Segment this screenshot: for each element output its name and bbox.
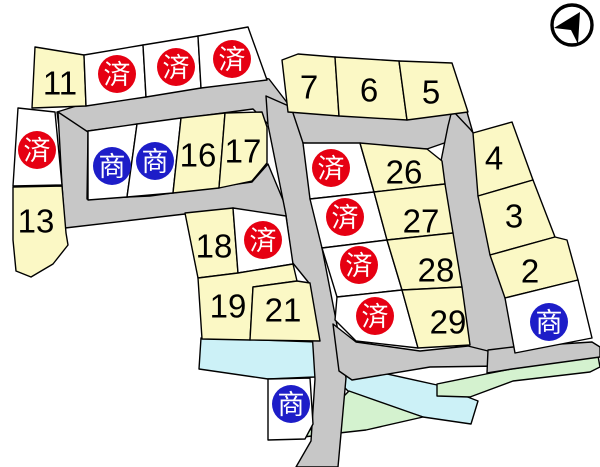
lot-sold-col-3-badge-label: 済 [346,251,373,281]
lot-21-label: 21 [265,292,302,329]
lot-3-label: 3 [505,198,523,235]
lot-13-label: 13 [18,203,55,240]
lot-4-label: 4 [485,140,503,177]
lot-sold-west-badge-label: 済 [24,136,51,166]
lot-commercial-4-badge-label: 商 [278,390,305,420]
lot-sold-mid-badge-label: 済 [250,226,277,256]
lot-7-label: 7 [300,69,318,106]
lot-2-label: 2 [521,253,539,290]
site-map-page: 11済済済765済13商商161718済1921済済済済26272829432商… [0,0,600,467]
lot-17-label: 17 [225,133,262,170]
lot-16-label: 16 [180,137,217,174]
lot-sold-col-4-badge-label: 済 [362,302,389,332]
lot-19-label: 19 [210,288,247,325]
lot-commercial-2-badge-label: 商 [142,147,169,177]
lot-sold-top-1-badge-label: 済 [104,60,131,90]
lot-sold-top-2-badge-label: 済 [163,53,190,83]
lot-commercial-1-badge-label: 商 [99,152,126,182]
lot-6-label: 6 [360,72,378,109]
lot-18-label: 18 [196,228,233,265]
lot-26-label: 26 [386,154,423,191]
lot-commercial-3-badge-label: 商 [536,308,563,338]
lot-11-label: 11 [43,65,77,102]
lot-29-label: 29 [430,304,467,341]
lot-27-label: 27 [403,203,440,240]
north-arrow-icon [552,5,592,45]
lot-5-label: 5 [422,74,440,111]
lot-28-label: 28 [418,252,455,289]
lot-sold-top-3-badge-label: 済 [219,45,246,75]
site-map: 11済済済765済13商商161718済1921済済済済26272829432商… [0,0,600,467]
lot-sold-col-2-badge-label: 済 [332,203,359,233]
waterway-west [199,338,318,379]
lot-sold-col-1-badge-label: 済 [318,154,345,184]
